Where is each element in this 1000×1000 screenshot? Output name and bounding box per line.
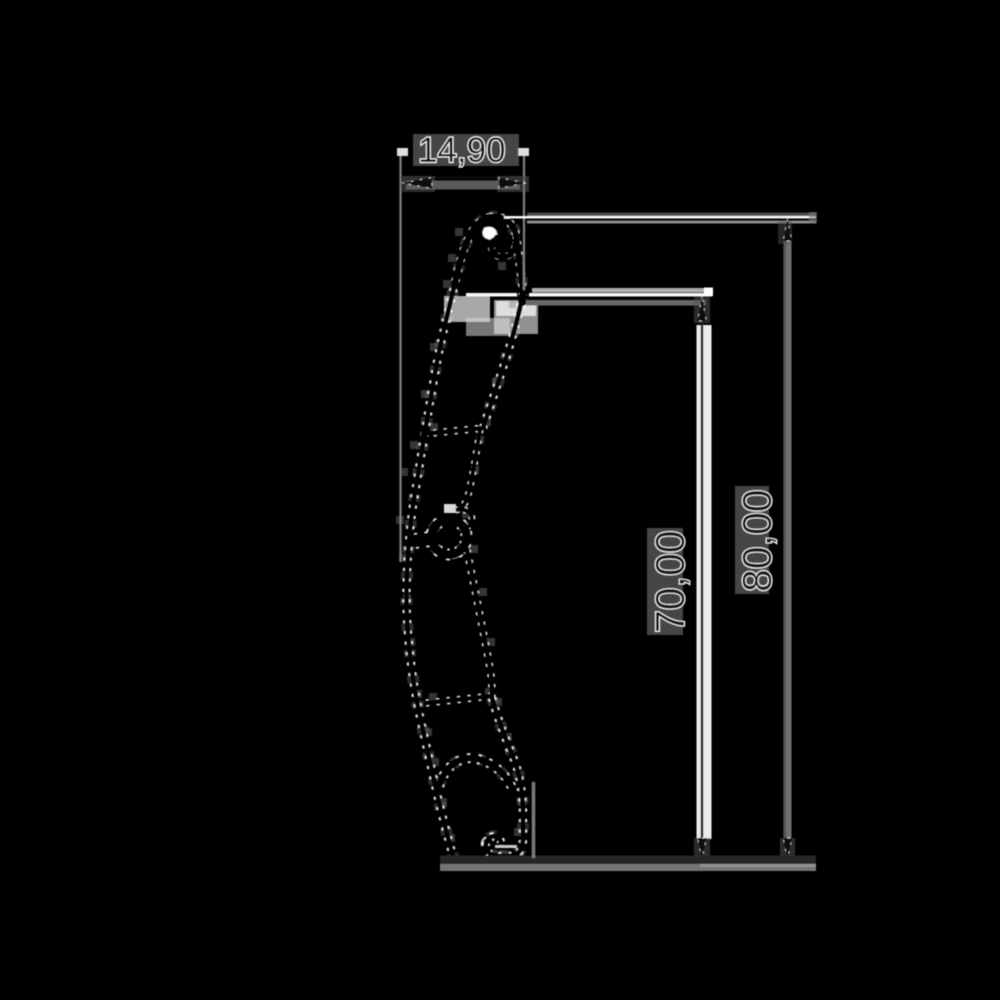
svg-text:14,90: 14,90 bbox=[418, 131, 506, 170]
svg-text:80,00: 80,00 bbox=[734, 489, 780, 592]
svg-text:70,00: 70,00 bbox=[647, 530, 693, 633]
